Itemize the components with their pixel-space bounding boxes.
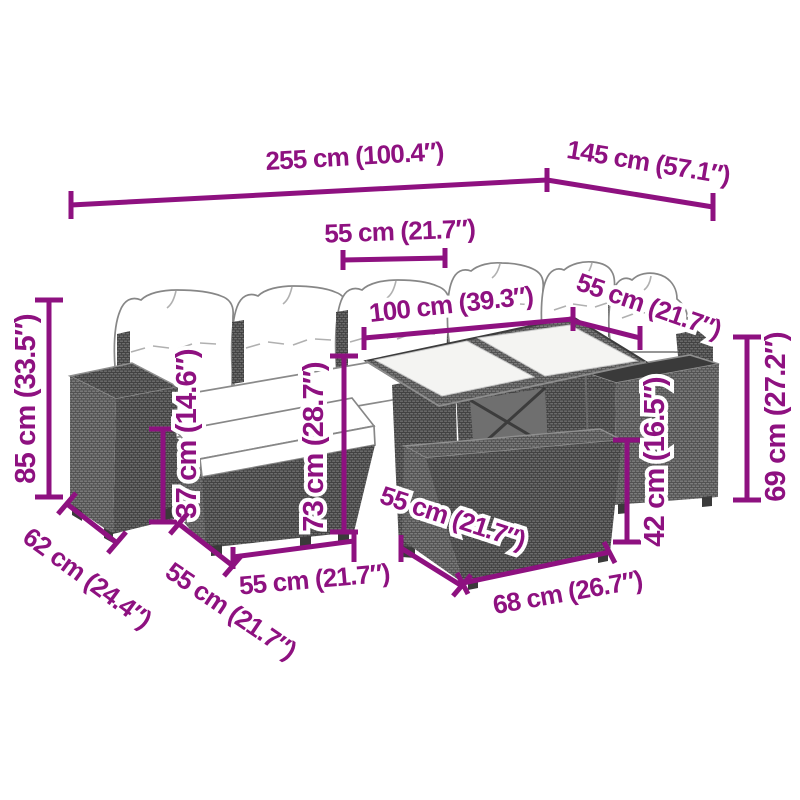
svg-text:73 cm (28.7″): 73 cm (28.7″) [298,362,330,532]
svg-text:42 cm (16.5″): 42 cm (16.5″) [639,377,671,547]
svg-text:55 cm (21.7″): 55 cm (21.7″) [324,213,476,248]
svg-text:69 cm (27.2″): 69 cm (27.2″) [760,332,792,502]
svg-text:85 cm (33.5″): 85 cm (33.5″) [10,314,42,484]
svg-text:37 cm (14.6″): 37 cm (14.6″) [171,349,203,519]
